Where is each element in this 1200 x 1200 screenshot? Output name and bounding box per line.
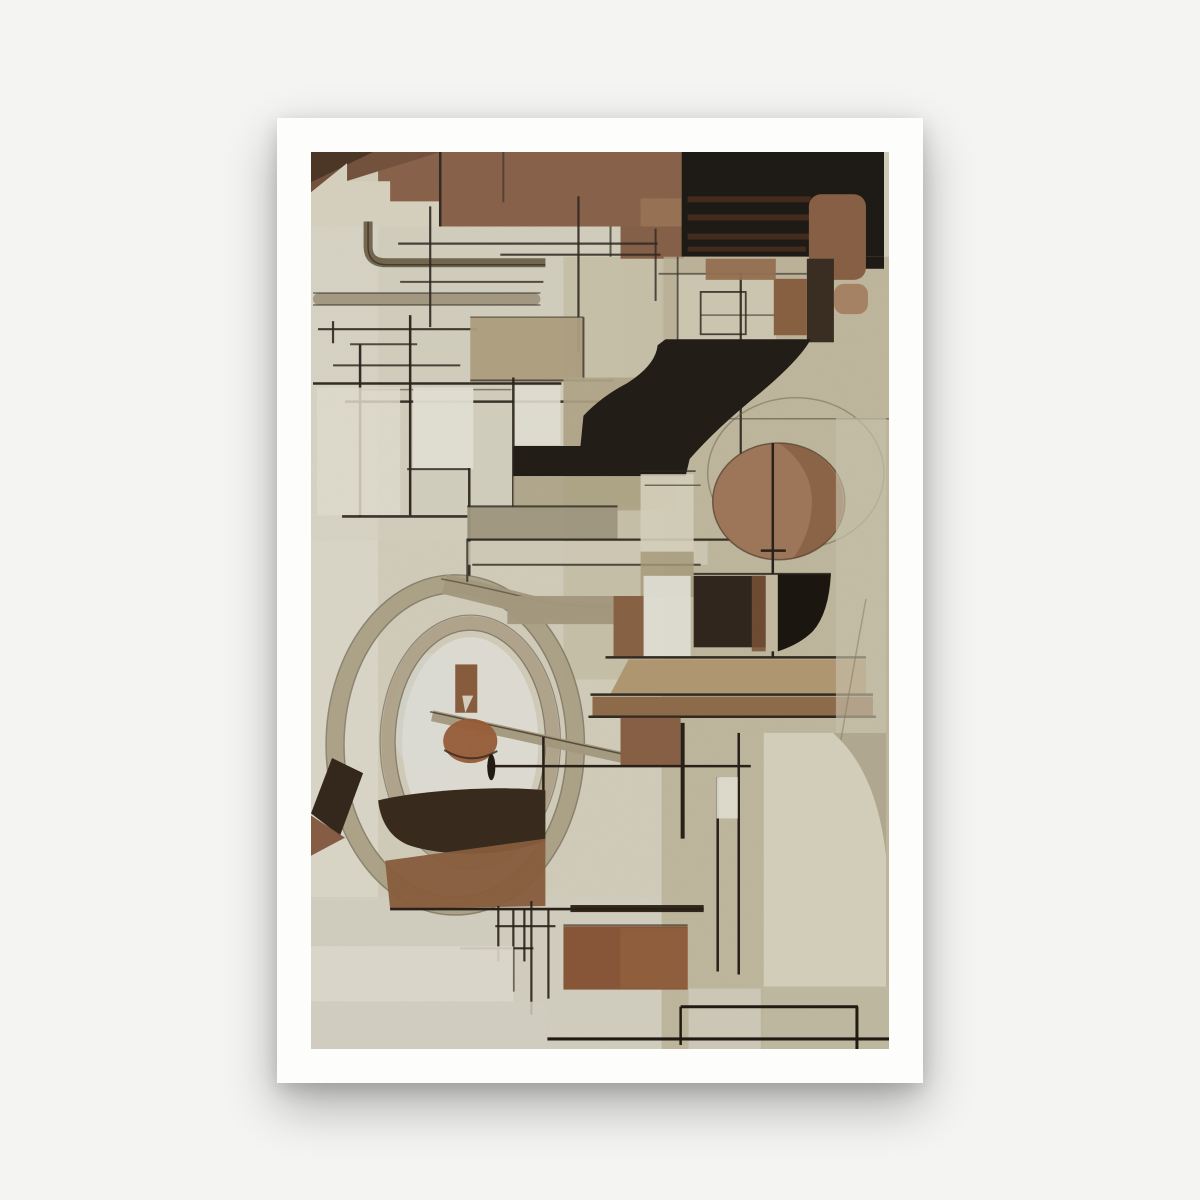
paper-grain-overlay	[311, 152, 889, 1049]
poster-sheet	[277, 118, 923, 1083]
abstract-artwork	[311, 152, 889, 1049]
artwork-svg	[311, 152, 889, 1049]
page-background: { "page": { "background": "#f4f4f3" }, "…	[0, 0, 1200, 1200]
